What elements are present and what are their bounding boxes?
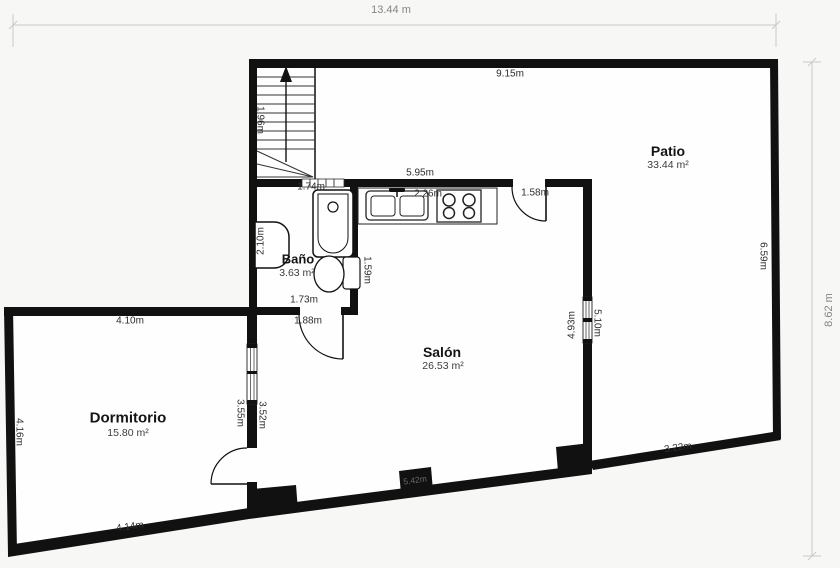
bathtub-icon [313, 190, 353, 257]
toilet-icon [314, 256, 360, 292]
dormitorio-salon-window [247, 344, 257, 404]
wall-left-upper [249, 59, 257, 316]
salon-patio-window [583, 297, 592, 343]
wall-pillar-2 [399, 467, 433, 494]
top-dimension-line [9, 14, 780, 47]
stove-icon [437, 190, 481, 222]
washbasin-icon [255, 222, 289, 268]
right-dimension-line [803, 58, 821, 560]
wall-dorm-top [4, 307, 257, 316]
floor-plan: 13.44 m 8.62 m 9.15m 6.59m 3.22m 5.10m 5… [0, 0, 840, 568]
wall-pillar-3 [556, 443, 590, 472]
floor-plan-drawing [0, 0, 840, 568]
kitchen-sink-icon [366, 188, 428, 220]
wall-top [249, 59, 778, 68]
stairs-threshold [302, 179, 344, 187]
wall-pillar-1 [253, 485, 298, 515]
